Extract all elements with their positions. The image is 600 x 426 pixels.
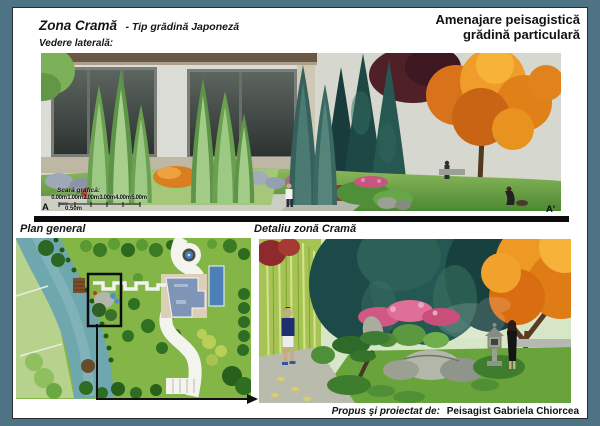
callout-arrow [91,320,261,406]
project-title-line2: grădină particulară [435,27,580,42]
detail-image [259,239,571,403]
scale-half-label: 0.50m [65,206,82,212]
plan-house [161,274,207,318]
section-line-bar [34,216,569,222]
scale-bar: Scară grafică: 0.00m 1.00m 2.00m 3.00m 4… [57,187,217,213]
section-marker-a-prime: A' [546,204,555,215]
view-label: Vedere laterală: [39,38,113,49]
detail-rendering [259,239,571,403]
scale-tick-5: 5.00m [129,195,149,201]
low-shrub-right [473,355,525,379]
zone-title: Zona Cramă - Tip grădină Japoneză [39,17,239,35]
credit-name: Peisagist Gabriela Chiorcea [447,406,579,417]
plan-label: Plan general [20,223,85,235]
scale-bar-title: Scară grafică: [57,187,100,194]
fountain [183,249,196,262]
section-marker-a: A [42,202,49,213]
pool [209,266,224,306]
detail-label: Detaliu zonă Cramă [254,223,356,235]
page-sheet: Zona Cramă - Tip grădină Japoneză Vedere… [12,7,588,419]
project-title: Amenajare peisagistică grădină particula… [435,12,580,42]
zone-title-main: Zona Cramă [39,18,117,33]
stone-bench [514,339,571,347]
presentation-board: Zona Cramă - Tip grădină Japoneză Vedere… [0,0,600,426]
credit-label: Propus şi proiectat de: [332,406,440,417]
project-title-line1: Amenajare peisagistică [435,12,580,27]
credit-line: Propus şi proiectat de: Peisagist Gabrie… [332,406,579,417]
zone-title-sub: - Tip grădină Japoneză [125,21,239,33]
house-facade [41,53,317,173]
